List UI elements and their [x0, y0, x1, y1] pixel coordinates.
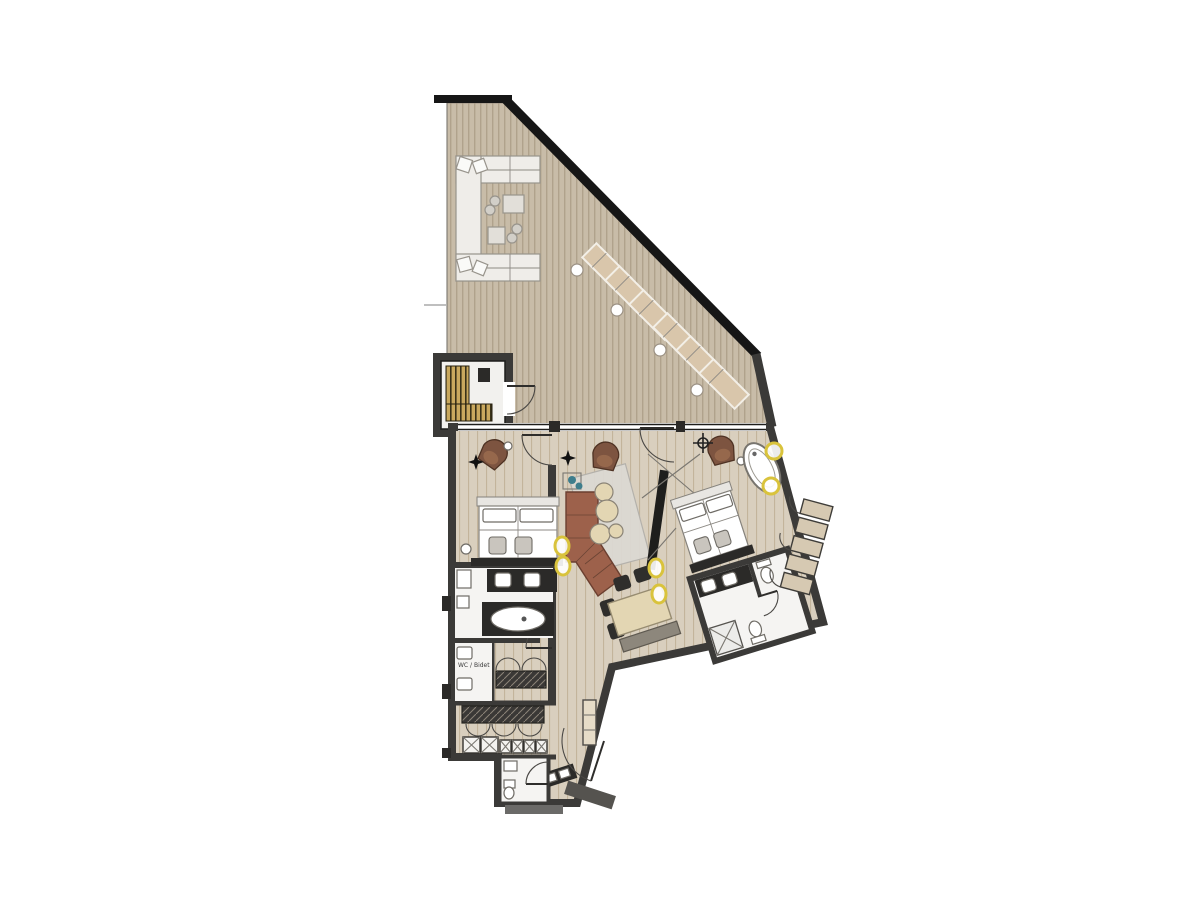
- bathtub: [491, 607, 545, 631]
- wardrobe-block: [462, 706, 544, 723]
- toilet: [457, 647, 472, 659]
- coffee-table: [609, 524, 623, 538]
- wc-bidet-room: WC / Bidet: [455, 643, 492, 701]
- terrace-top-wall: [434, 95, 512, 103]
- spotlight: [555, 537, 569, 555]
- wall-pilaster: [442, 748, 451, 758]
- coffee-table: [590, 524, 610, 544]
- closet-boxes: [463, 737, 547, 753]
- coffee-table: [595, 483, 613, 501]
- teal-pillow: [576, 483, 583, 490]
- floor-plan-page: WC / Bidet: [0, 0, 1200, 900]
- window-post: [676, 421, 685, 432]
- bed-bench: [489, 537, 506, 554]
- entry-step-outside: [505, 805, 563, 814]
- wardrobe-block: [496, 671, 546, 688]
- lounger-side-table: [571, 264, 583, 276]
- teal-pillow: [568, 476, 576, 484]
- wall-pilaster: [442, 596, 451, 611]
- bathroom-left: [455, 568, 557, 638]
- outdoor-pouf: [512, 224, 522, 234]
- wc-bidet-label: WC / Bidet: [458, 662, 490, 669]
- floor-plan-drawing: WC / Bidet: [0, 0, 1200, 900]
- spotlight: [649, 559, 663, 577]
- outdoor-pillow: [457, 256, 473, 272]
- hall-cabinet: [583, 700, 596, 745]
- spotlight: [763, 478, 779, 494]
- outdoor-pouf: [490, 196, 500, 206]
- lounger-side-table: [691, 384, 703, 396]
- wall-lamp: [504, 442, 512, 450]
- bidet: [457, 678, 472, 690]
- lounger-side-table: [654, 344, 666, 356]
- spotlight: [556, 557, 570, 575]
- bed-bench: [515, 537, 532, 554]
- outdoor-pouf: [507, 233, 517, 243]
- bathtub-drain: [522, 617, 527, 622]
- toilet-bowl: [504, 787, 514, 799]
- nightstand: [461, 544, 471, 554]
- spotlight: [652, 585, 666, 603]
- bed-headboard: [477, 497, 559, 506]
- outdoor-pouf: [485, 205, 495, 215]
- wardrobe-unit: [800, 499, 833, 521]
- bed-footboard: [471, 558, 563, 566]
- towel-shelf: [457, 570, 471, 588]
- guest-wc: [500, 757, 548, 803]
- sauna-heater: [478, 368, 490, 382]
- pillow: [483, 509, 516, 522]
- sauna-door-gap: [503, 382, 515, 416]
- lounger-side-table: [611, 304, 623, 316]
- window-post: [549, 421, 560, 432]
- coffee-table: [596, 500, 618, 522]
- outdoor-coffee-table: [488, 227, 505, 244]
- sink: [495, 573, 511, 587]
- outdoor-coffee-table: [503, 195, 524, 213]
- washbasin-small: [457, 596, 469, 608]
- sink: [524, 573, 540, 587]
- sauna-bench-bottom: [446, 404, 492, 421]
- spotlight: [766, 443, 782, 459]
- wall-pilaster: [442, 684, 451, 699]
- washbasin: [504, 761, 517, 771]
- pillow: [520, 509, 553, 522]
